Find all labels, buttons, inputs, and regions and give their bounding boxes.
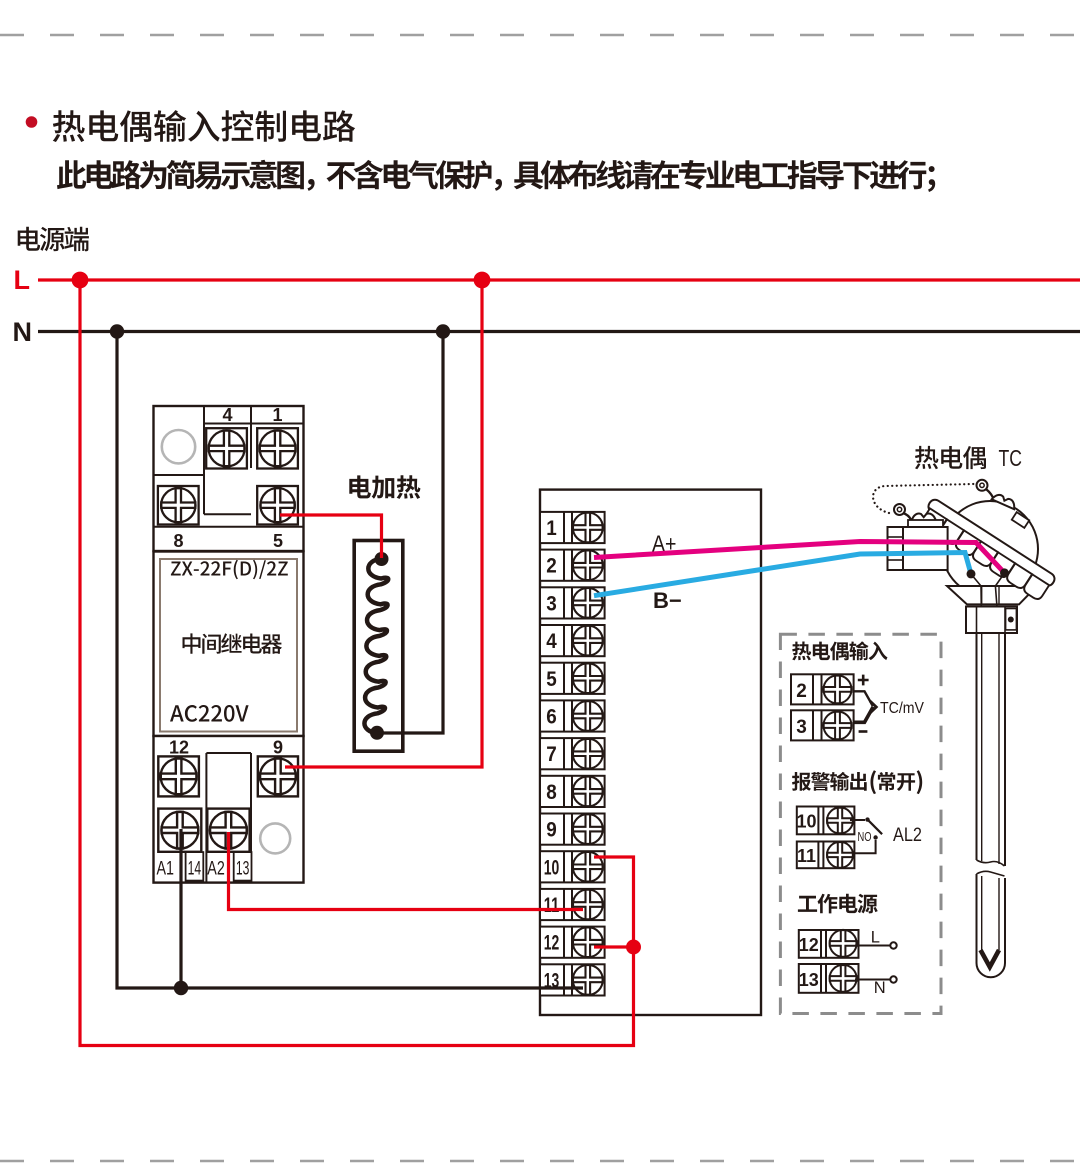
svg-text:A1: A1: [157, 858, 175, 880]
svg-text:11: 11: [797, 846, 816, 866]
svg-text:5: 5: [273, 531, 283, 551]
svg-text:14: 14: [188, 858, 202, 880]
svg-text:N: N: [13, 317, 33, 347]
svg-text:TC/mV: TC/mV: [880, 700, 924, 717]
svg-text:L: L: [14, 265, 31, 295]
svg-text:12: 12: [169, 738, 189, 758]
svg-text:5: 5: [546, 668, 557, 691]
svg-text:11: 11: [544, 894, 560, 917]
svg-text:8: 8: [173, 531, 183, 551]
svg-text:3: 3: [546, 592, 557, 615]
svg-text:N: N: [874, 979, 886, 997]
svg-text:1: 1: [546, 517, 557, 540]
svg-text:4: 4: [222, 405, 232, 425]
svg-text:3: 3: [796, 717, 807, 738]
svg-text:A2: A2: [207, 858, 225, 880]
svg-text:L: L: [871, 929, 880, 947]
svg-text:AL2: AL2: [893, 825, 922, 846]
svg-text:9: 9: [546, 819, 557, 842]
svg-text:6: 6: [546, 706, 557, 729]
svg-text:B−: B−: [653, 588, 682, 613]
svg-text:9: 9: [273, 738, 283, 758]
svg-text:12: 12: [799, 935, 819, 955]
svg-text:2: 2: [796, 681, 807, 702]
svg-text:10: 10: [796, 812, 816, 832]
svg-text:4: 4: [546, 630, 557, 653]
svg-text:7: 7: [546, 743, 557, 766]
svg-text:12: 12: [544, 932, 560, 955]
svg-text:10: 10: [544, 856, 560, 879]
svg-text:13: 13: [236, 858, 250, 880]
svg-text:2: 2: [546, 555, 557, 578]
svg-text:TC: TC: [999, 445, 1023, 471]
svg-text:1: 1: [272, 405, 282, 425]
svg-text:NO: NO: [858, 830, 872, 844]
svg-text:8: 8: [546, 781, 557, 804]
svg-text:13: 13: [799, 970, 819, 990]
